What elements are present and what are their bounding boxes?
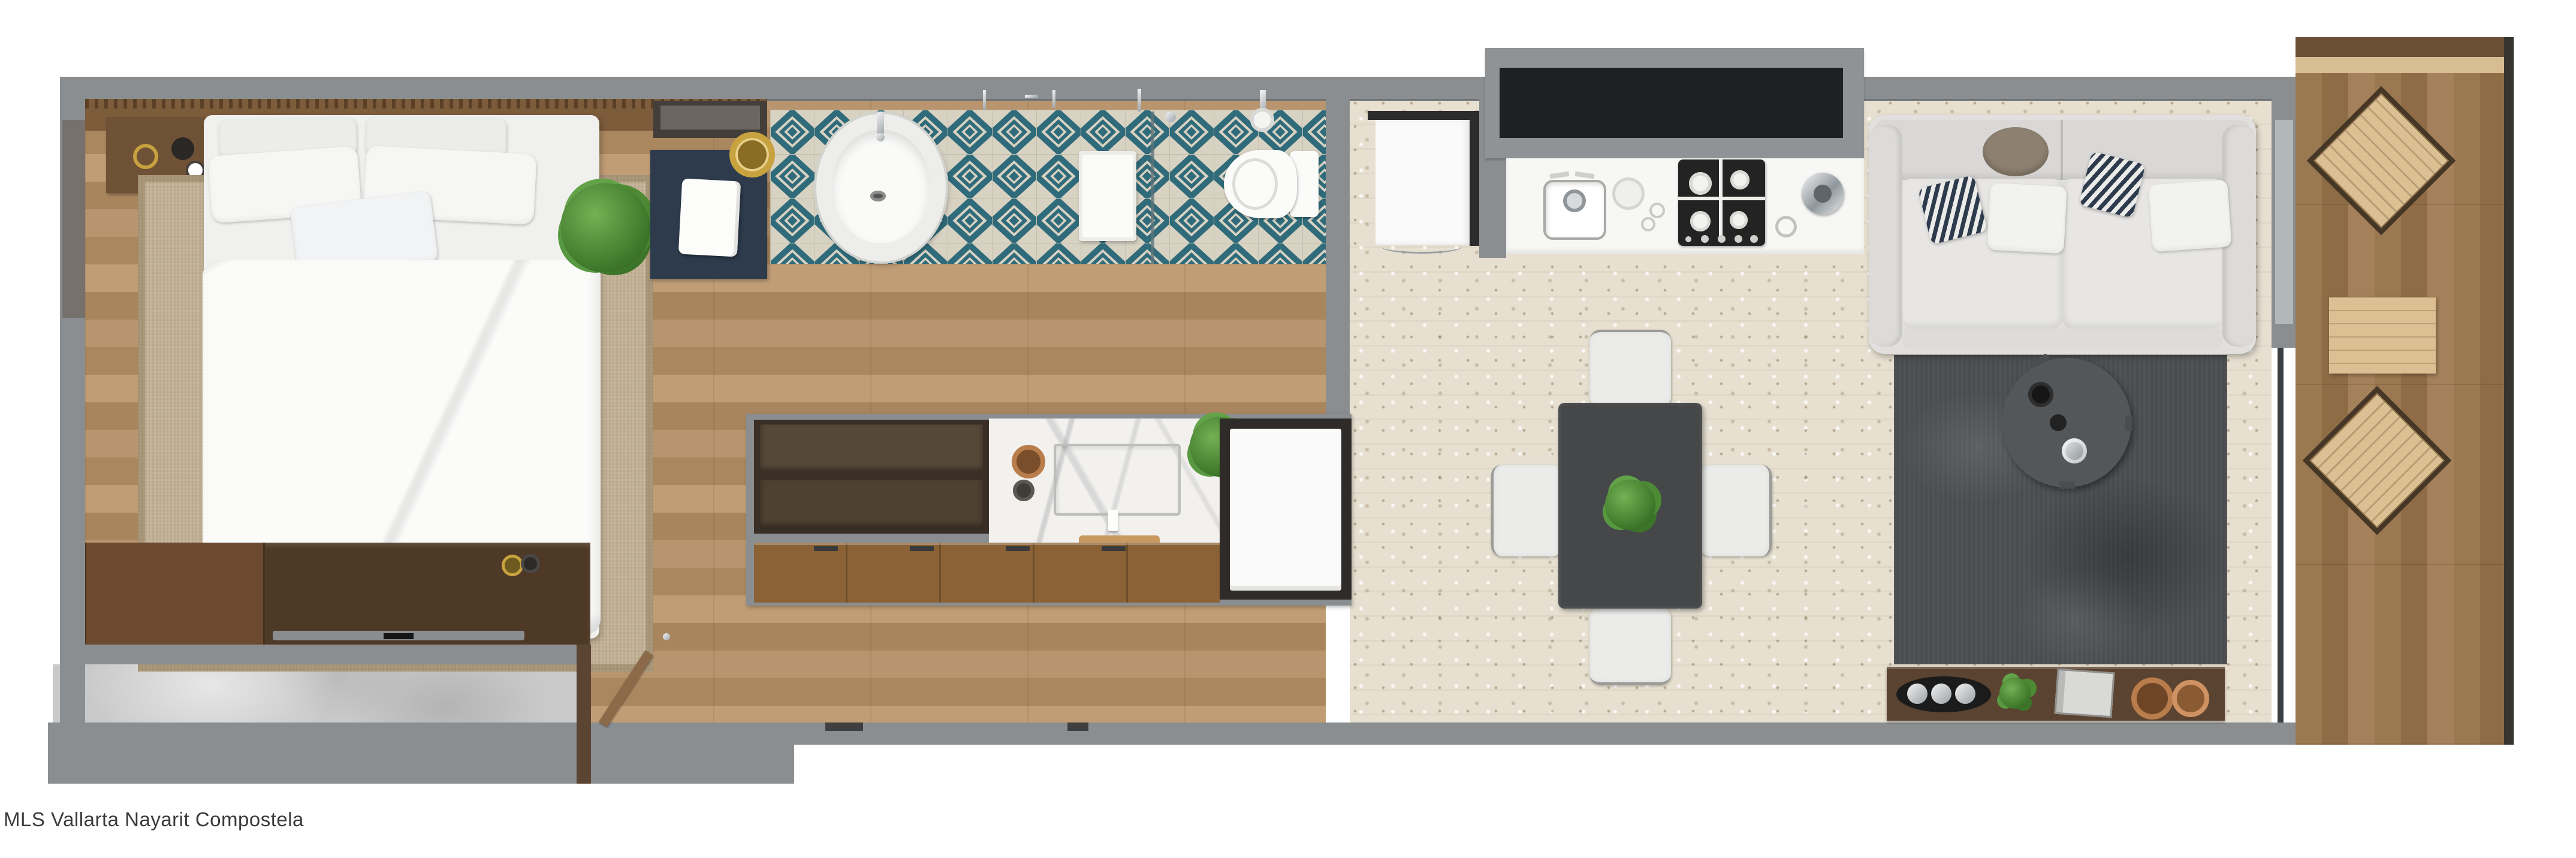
tray-cup-3 (1955, 684, 1975, 704)
sofa-arm-left (1869, 125, 1902, 347)
cooktop (1678, 159, 1765, 246)
bottom-wall-mark-1 (825, 722, 863, 731)
bath-mat (1079, 151, 1136, 241)
fridge-frame-right (1470, 111, 1479, 246)
balcony-table (2329, 297, 2436, 374)
fixture-2 (1025, 95, 1038, 98)
knob-4 (1735, 235, 1742, 243)
fixture-3 (1052, 90, 1055, 108)
sideboard (1887, 667, 2225, 721)
top-wall (60, 77, 2296, 101)
small-bowl (1775, 216, 1797, 237)
balcony-threshold (2296, 57, 2505, 73)
sofa-pillow-white-left (1987, 183, 2067, 254)
sink-faucet (1563, 189, 1586, 212)
entry-divider (577, 645, 591, 784)
balcony-sliding-door (2278, 348, 2284, 722)
wardrobe-left (85, 543, 265, 645)
console-vase-gold (502, 555, 523, 576)
chrome-bowl (1802, 173, 1844, 215)
sofa-front-lip (1902, 329, 2222, 349)
kitchen-cup-1 (1649, 203, 1665, 218)
bottom-wall-mark-2 (1067, 722, 1088, 731)
cabinet-handle-3 (1006, 546, 1030, 551)
vanity-dish-dark (1013, 480, 1034, 501)
shelf-top (760, 425, 983, 472)
knob-2 (1701, 235, 1709, 243)
toilet-seat (1232, 158, 1278, 210)
fixture-1 (983, 90, 986, 110)
balcony-top-rail (2296, 37, 2512, 57)
fridge-handle (1381, 240, 1462, 254)
bedroom-plant (560, 183, 650, 273)
fridge (1376, 120, 1470, 245)
kitchen-bar-countertop (1500, 68, 1843, 138)
sofa-pillow-white-right (2148, 180, 2231, 252)
shower-glass (1151, 112, 1154, 264)
bathtub-faucet (877, 112, 884, 136)
console-vase-dark (521, 554, 540, 573)
floor-plan: MLS Vallarta Nayarit Compostela (0, 0, 2576, 858)
cooktop-grate (1678, 159, 1765, 237)
vanity-faucet (1108, 510, 1118, 531)
knob-3 (1718, 235, 1726, 243)
sideboard-magazines (2054, 669, 2115, 718)
candle-gold (133, 144, 158, 169)
table-notch-3 (2059, 481, 2075, 489)
sofa-back-split (2061, 120, 2063, 180)
dining-chair-top (1589, 330, 1671, 408)
bottom-wall (794, 722, 2296, 745)
shelf-bottom (760, 480, 983, 529)
cabinet-handle-2 (910, 546, 934, 551)
table-dish-chrome (2062, 438, 2087, 463)
sideboard-bowl-copper-2 (2172, 680, 2209, 717)
vanity-sink (1054, 444, 1181, 516)
tv-bar-center (384, 633, 414, 639)
terrace-bottom-wall (48, 722, 794, 784)
vanity-counter (989, 419, 1220, 544)
cabinet-handle-1 (814, 546, 838, 551)
open-shelf-unit (754, 420, 989, 534)
desk-recess-inner (660, 106, 760, 130)
bathtub-spout (876, 133, 885, 142)
fridge-frame-top (1368, 111, 1479, 120)
balcony-wall-glass (2275, 120, 2293, 324)
cabinet-handle-4 (1102, 546, 1126, 551)
coffee-table (2002, 358, 2131, 487)
caption-text: MLS Vallarta Nayarit Compostela (4, 808, 304, 831)
vanity-cabinets (754, 543, 1220, 603)
bathtub-basin (832, 130, 930, 243)
kitchen-plate (1612, 177, 1645, 210)
desk-lamp-gold (729, 132, 775, 177)
balcony-right-rail (2504, 37, 2514, 745)
tray-cup-2 (1931, 684, 1951, 704)
shower-valve (1138, 89, 1141, 112)
left-wall-window (62, 120, 85, 318)
desk-book (678, 179, 741, 257)
dining-chair-left (1491, 465, 1563, 556)
dining-chair-bottom (1589, 607, 1671, 685)
bathtub-drain (870, 191, 886, 201)
washer-nook (1220, 419, 1352, 600)
sofa-round-tray (1983, 127, 2049, 176)
knob-1 (1685, 236, 1691, 242)
bedroom-bottom-wall (60, 645, 590, 664)
entry-door-handle (663, 633, 670, 640)
dining-chair-right (1700, 465, 1772, 556)
bathroom-right-wall (1326, 99, 1350, 462)
tray-cup-1 (1907, 684, 1928, 704)
shower-head (1165, 112, 1176, 122)
table-bowl-large (2028, 382, 2053, 407)
tp-roll (1250, 108, 1274, 132)
sideboard-plant (1999, 678, 2031, 709)
candle-dark (171, 137, 194, 160)
sideboard-bowl-copper-1 (2131, 678, 2173, 719)
table-notch-2 (2125, 416, 2132, 431)
vanity-dish-copper (1012, 445, 1045, 478)
toilet-bowl (1224, 150, 1297, 218)
table-bowl-small (2050, 414, 2067, 431)
knob-5 (1750, 235, 1758, 243)
chrome-bowl-center (1814, 185, 1832, 203)
sofa (1869, 115, 2256, 354)
terrace-floor (53, 664, 577, 724)
kitchen-cup-2 (1641, 217, 1655, 231)
dining-centerpiece-plant (1605, 480, 1655, 530)
washer (1230, 429, 1341, 591)
